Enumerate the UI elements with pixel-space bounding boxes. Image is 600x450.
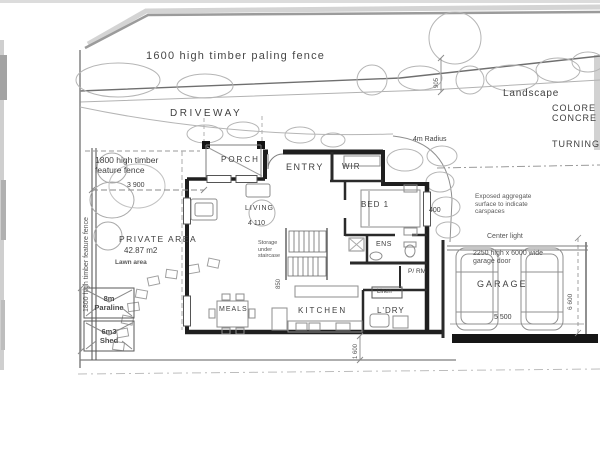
dim-4110: 4 110	[248, 220, 265, 228]
label-exposed-aggregate: Exposed aggregate surface to indicate ca…	[475, 193, 531, 216]
label-room-entry: ENTRY	[286, 162, 324, 172]
label-storage: Storage under staircase	[258, 240, 280, 260]
label-private-area-size: 42.87 m2	[124, 246, 157, 255]
label-paraline: 8m Paraline	[84, 294, 134, 312]
label-room-powder: P/ RM	[408, 268, 426, 275]
label-room-laundry: L'DRY	[377, 306, 405, 315]
label-room-living: LIVING	[245, 205, 274, 213]
label-paling-fence: 1600 high timber paling fence	[146, 50, 325, 63]
label-room-meals: MEALS	[219, 306, 248, 314]
label-room-ens: ENS	[376, 241, 392, 249]
label-lawn: Lawn area	[115, 259, 147, 266]
dim-6600: 6 600	[567, 294, 574, 310]
label-shed: 6m3 Shed	[84, 327, 134, 345]
floor-plan-scan: 1600 high timber paling fence Landscape …	[0, 0, 600, 450]
label-room-bed1: BED 1	[361, 200, 389, 209]
label-room-porch: PORCH	[221, 155, 260, 164]
dim-905: 905	[434, 78, 441, 88]
dim-850: 850	[276, 279, 283, 289]
label-landscape: Landscape	[503, 88, 559, 100]
label-private-area: PRIVATE AREA	[119, 235, 197, 245]
label-driveway: DRIVEWAY	[170, 108, 242, 120]
label-turning: TURNING	[552, 139, 600, 149]
label-feature-fence: 1800 high timber feature fence	[95, 155, 158, 175]
label-room-garage: GARAGE	[477, 279, 528, 289]
label-colored-concrete-2: CONCRE	[552, 113, 597, 123]
dim-5500: 5 500	[494, 314, 512, 322]
label-radius: 4m Radius	[413, 136, 446, 144]
label-garage-door: 2250 high x 6000 wide garage door	[473, 250, 543, 266]
label-room-kitchen: KITCHEN	[298, 306, 347, 315]
label-layer: 1600 high timber paling fence Landscape …	[0, 0, 600, 450]
label-linen: Linen	[377, 289, 392, 296]
label-room-wir: WIR	[342, 162, 361, 171]
dim-3900: 3 900	[127, 182, 145, 190]
dim-400: 400	[429, 207, 441, 215]
label-colored-concrete-1: COLORE	[552, 103, 596, 113]
dim-1600: 1 600	[353, 344, 360, 359]
label-center-light: Center light	[487, 233, 523, 241]
